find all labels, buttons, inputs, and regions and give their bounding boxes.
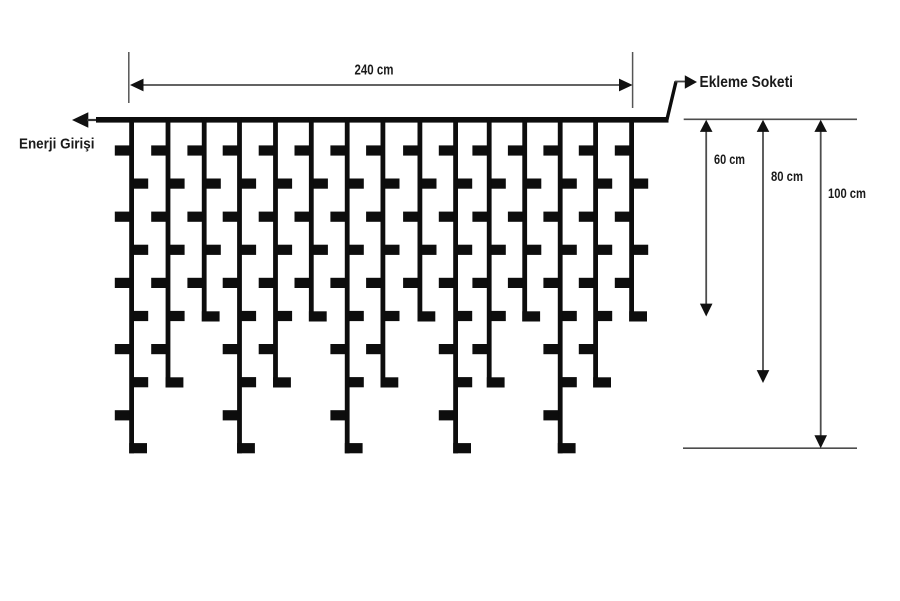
svg-text:60 cm: 60 cm bbox=[714, 152, 745, 168]
svg-text:Ekleme Soketi: Ekleme Soketi bbox=[700, 74, 794, 91]
svg-text:100 cm: 100 cm bbox=[828, 186, 866, 202]
svg-text:80 cm: 80 cm bbox=[771, 169, 803, 185]
svg-text:240 cm: 240 cm bbox=[355, 63, 394, 79]
svg-text:Enerji Girişi: Enerji Girişi bbox=[19, 135, 95, 152]
